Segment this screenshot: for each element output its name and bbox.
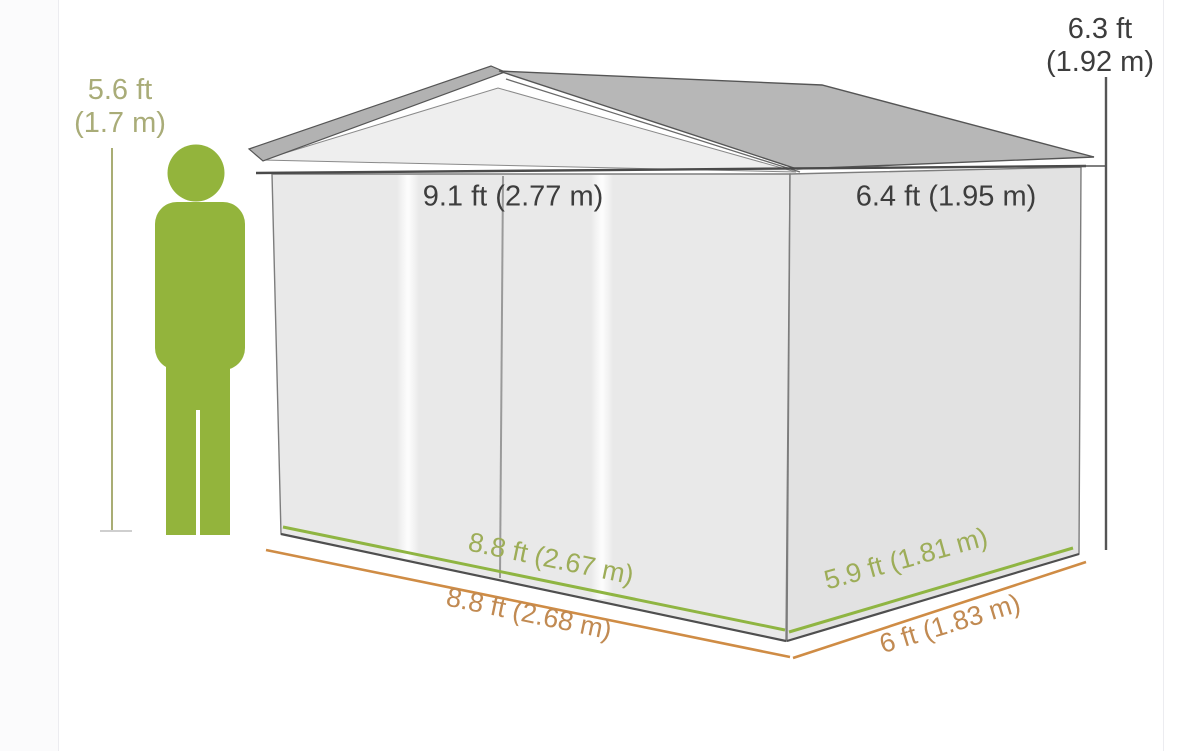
person-height-m: (1.7 m) [74, 107, 166, 140]
shed-height-ft: 6.3 ft [1046, 13, 1154, 46]
person-silhouette [155, 145, 245, 536]
product-image-canvas: 5.6 ft (1.7 m) 6.3 ft (1.92 m) 9.1 ft (2… [0, 0, 1200, 751]
person-head [168, 145, 225, 202]
person-height-ft: 5.6 ft [74, 74, 166, 107]
person-left-leg [166, 352, 196, 535]
shed-height-label: 6.3 ft (1.92 m) [1046, 13, 1154, 79]
roof-depth-label: 6.4 ft (1.95 m) [856, 181, 1037, 214]
person-right-leg [200, 352, 230, 535]
door-highlight-right [591, 175, 613, 599]
roof-width-label: 9.1 ft (2.77 m) [423, 181, 604, 214]
person-height-label: 5.6 ft (1.7 m) [74, 74, 166, 140]
door-highlight-left [397, 175, 419, 559]
shed-height-m: (1.92 m) [1046, 46, 1154, 79]
person-torso [155, 202, 245, 370]
